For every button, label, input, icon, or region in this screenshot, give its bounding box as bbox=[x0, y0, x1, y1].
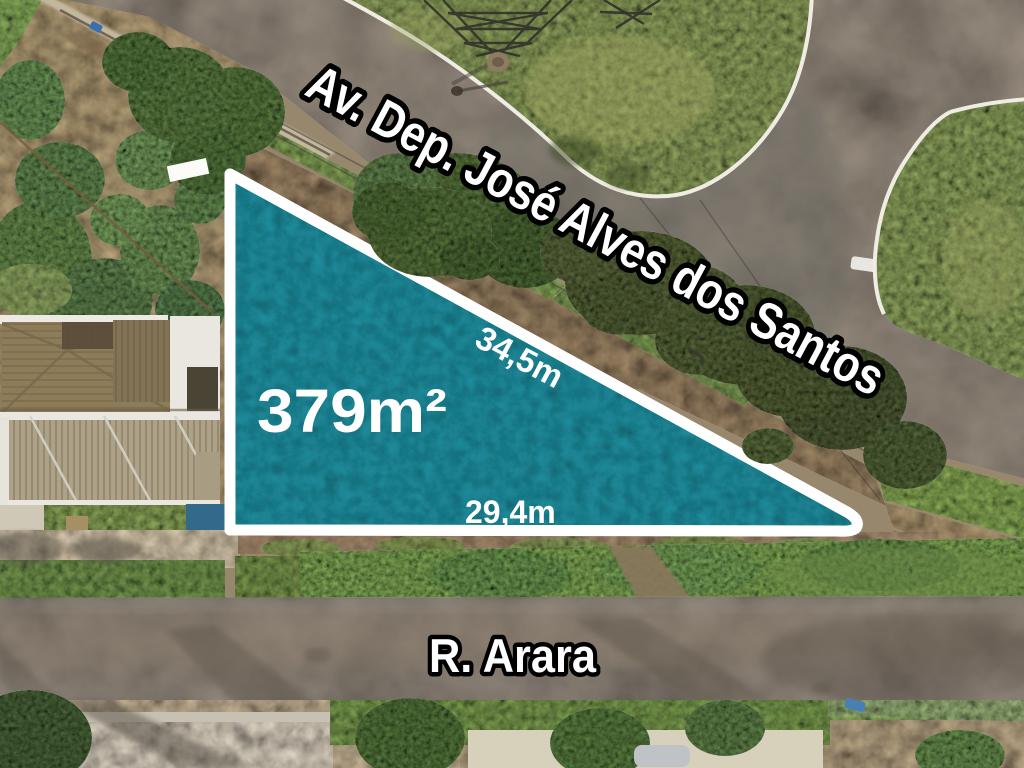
svg-text:R. Arara: R. Arara bbox=[429, 629, 597, 682]
svg-text:379m²: 379m² bbox=[257, 377, 447, 445]
svg-text:29,4m: 29,4m bbox=[465, 494, 556, 530]
